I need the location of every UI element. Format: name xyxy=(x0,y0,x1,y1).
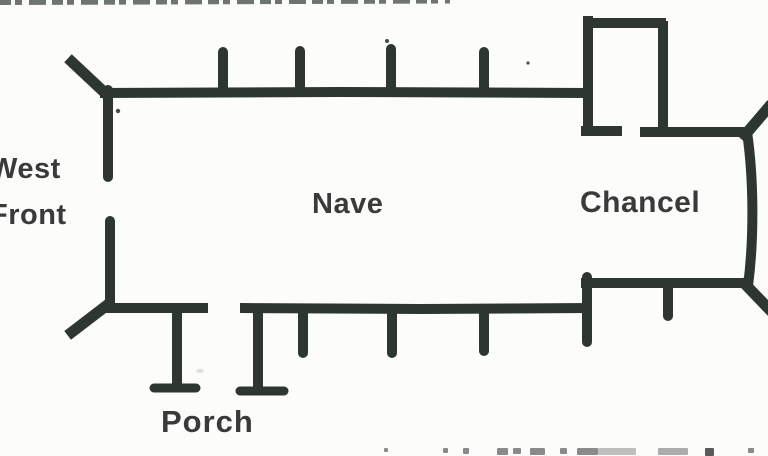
southwest-corner-buttress xyxy=(72,306,106,332)
chancel-label: Chancel xyxy=(580,186,700,220)
nave-north-wall xyxy=(100,92,590,93)
west-front-label-line1: West xyxy=(0,146,67,192)
ink-speck-1 xyxy=(116,109,120,113)
chancel-east-wall xyxy=(747,132,752,286)
nave-label: Nave xyxy=(312,188,383,221)
nave-south-wall-east-segment xyxy=(240,308,592,309)
southeast-corner-buttress xyxy=(745,284,768,308)
cropped-text-line-bottom xyxy=(0,444,768,456)
porch-label: Porch xyxy=(161,404,254,440)
church-floor-plan-drawing xyxy=(0,0,768,456)
west-front-label: West Front xyxy=(0,146,67,238)
scanned-church-plan-page: West Front Nave Chancel Porch xyxy=(0,0,768,456)
west-front-label-line2: Front xyxy=(0,192,67,238)
ink-speck-2 xyxy=(385,39,389,43)
northwest-corner-buttress xyxy=(72,62,104,92)
ink-speck-3 xyxy=(526,61,529,64)
scan-smudge xyxy=(196,369,204,373)
